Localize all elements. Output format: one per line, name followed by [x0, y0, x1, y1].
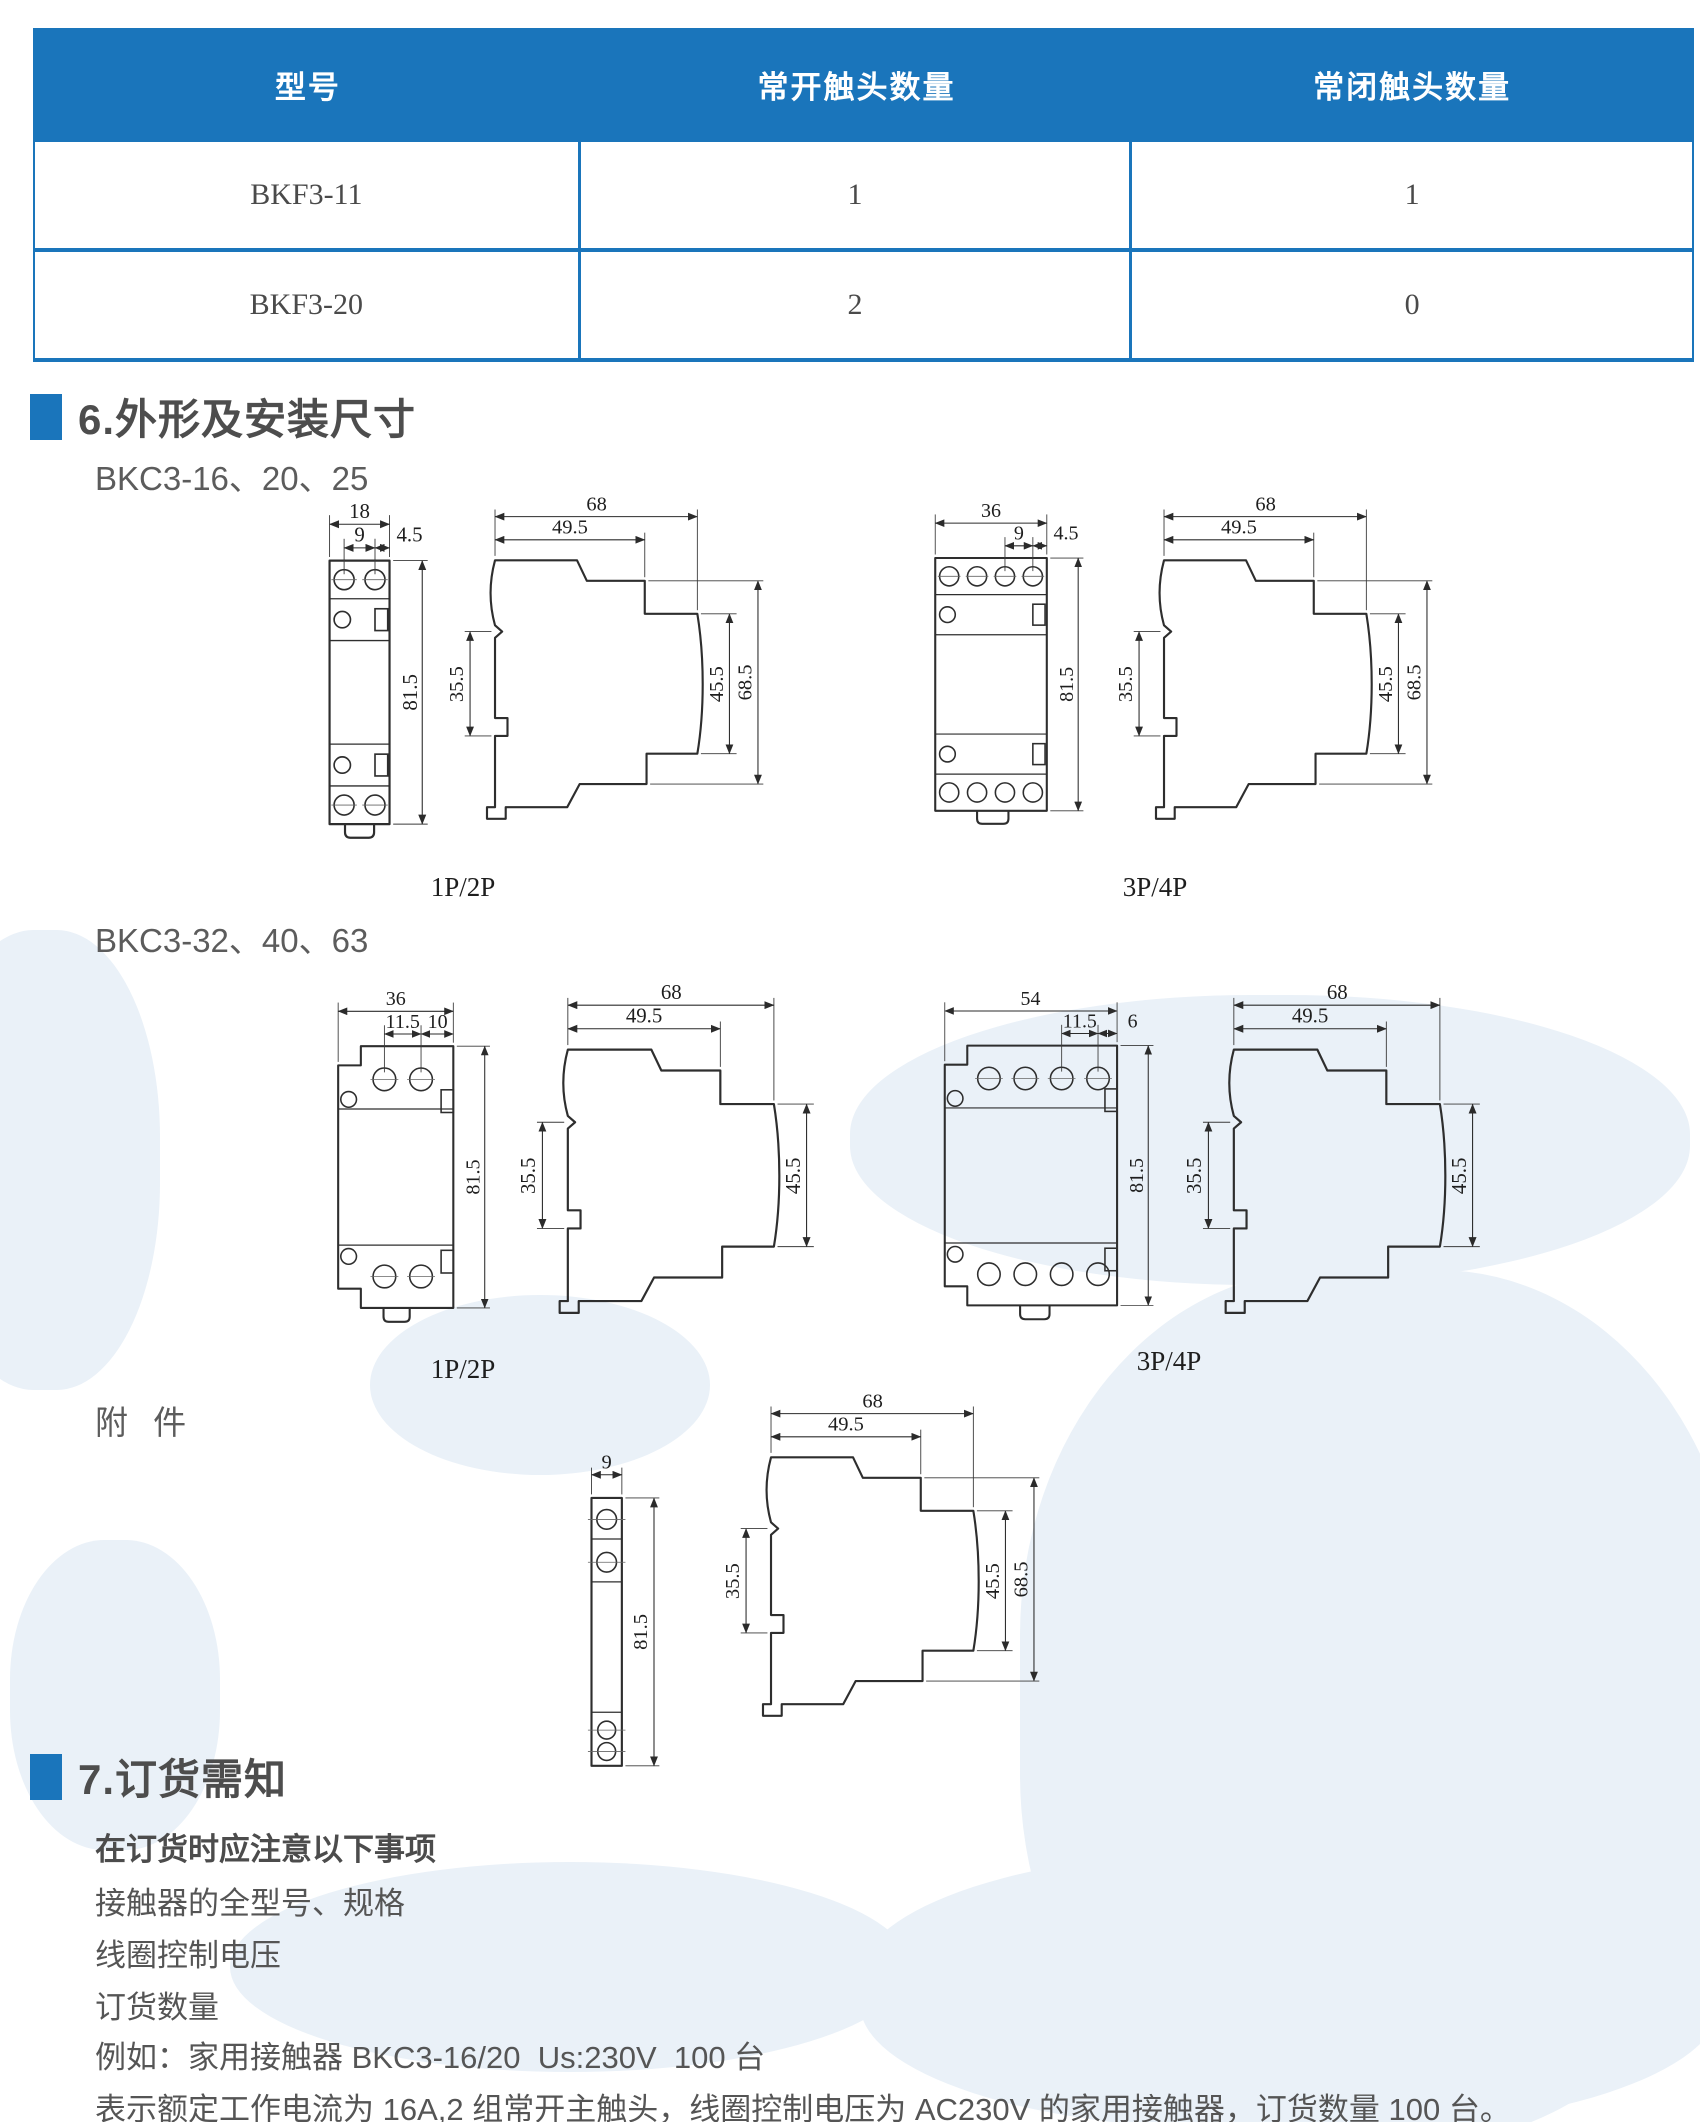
dim-text: 68 [1327, 985, 1348, 1004]
dim-text: 81.5 [1126, 1158, 1148, 1193]
no-count-cell: 1 [581, 142, 1133, 248]
ordering-item: 线圈控制电压 [95, 1930, 281, 1975]
dim-text: 49.5 [828, 1414, 864, 1436]
table-row: BKF3-20 2 0 [35, 248, 1692, 358]
ordering-item: 订货数量 [95, 1982, 219, 2027]
dim-text: 6 [1128, 1010, 1138, 1032]
ordering-item: 接触器的全型号、规格 [95, 1878, 405, 1923]
front-view-1p2p: 36 11.5 10 81.5 [312, 985, 517, 1356]
dim-text: 35.5 [517, 1158, 540, 1195]
dim-text: 36 [981, 500, 1001, 522]
drawing-unit-bkc3-large-1p2p: 36 11.5 10 81.5 68 49.5 35.5 45.5 [312, 985, 822, 1356]
col-header-no-contacts: 常开触头数量 [581, 28, 1133, 140]
section-7-header: 7.订货需知 [30, 1746, 287, 1807]
no-count-cell: 2 [581, 252, 1133, 358]
dim-text: 36 [386, 988, 406, 1010]
dim-text: 81.5 [630, 1614, 652, 1650]
front-view-1p2p: 18 9 4.5 81.5 [295, 497, 445, 865]
dim-text: 49.5 [626, 1003, 663, 1027]
dim-text: 4.5 [1053, 523, 1078, 545]
watermark-blob [860, 1850, 1700, 2122]
accessory-label: 附 件 [95, 1396, 194, 1444]
col-header-nc-contacts: 常闭触头数量 [1132, 28, 1692, 140]
dim-text: 9 [602, 1452, 612, 1474]
side-view-3p4p: 68 49.5 35.5 45.5 [1183, 985, 1488, 1353]
side-view-1p2p: 68 49.5 35.5 45.5 68.5 [445, 497, 775, 858]
drawing-unit-bkc3-large-3p4p: 54 11.5 6 81.5 68 49.5 35.5 45.5 [923, 985, 1488, 1353]
ordering-example: 例如：家用接触器 BKC3-16/20 Us:230V 100 台 [95, 2032, 765, 2077]
section-bullet [30, 394, 62, 440]
dim-text: 68 [862, 1394, 883, 1412]
pole-label: 1P/2P [398, 1354, 528, 1385]
drawing-unit-bkc3-small-1p2p: 18 9 4.5 81.5 68 49.5 35.5 45.5 [295, 497, 775, 865]
model-cell: BKF3-11 [35, 142, 581, 248]
table-row: BKF3-11 1 1 [35, 140, 1692, 248]
table-header-row: 型号 常开触头数量 常闭触头数量 [35, 28, 1692, 140]
dim-text: 54 [1021, 988, 1041, 1010]
contact-spec-table: 型号 常开触头数量 常闭触头数量 BKF3-11 1 1 BKF3-20 2 0 [33, 28, 1694, 362]
dim-text: 9 [1014, 523, 1024, 545]
dim-text: 81.5 [462, 1159, 484, 1194]
dim-text: 68.5 [735, 664, 757, 700]
dim-text: 68 [661, 985, 682, 1004]
ordering-note: 表示额定工作电流为 16A,2 组常开主触头，线圈控制电压为 AC230V 的家… [95, 2084, 1511, 2122]
side-view-1p2p: 68 49.5 35.5 45.5 [517, 985, 822, 1353]
pole-label: 1P/2P [398, 872, 528, 903]
dim-text: 9 [354, 523, 364, 547]
ordering-intro: 在订货时应注意以下事项 [95, 1824, 436, 1869]
section-6-title: 6.外形及安装尺寸 [78, 386, 416, 447]
dim-text: 45.5 [982, 1563, 1004, 1599]
dim-text: 68 [586, 497, 607, 515]
dim-text: 45.5 [1447, 1158, 1471, 1195]
dim-text: 81.5 [398, 674, 422, 711]
dim-text: 11.5 [1063, 1010, 1097, 1032]
pole-label: 3P/4P [1104, 1346, 1234, 1377]
dim-text: 68.5 [1011, 1561, 1033, 1597]
dim-text: 35.5 [1183, 1158, 1206, 1195]
section-bullet [30, 1754, 62, 1800]
dim-text: 18 [349, 499, 370, 523]
dim-text: 35.5 [722, 1563, 744, 1599]
nc-count-cell: 1 [1132, 142, 1692, 248]
dim-text: 11.5 [386, 1011, 420, 1033]
dim-text: 45.5 [706, 666, 728, 702]
watermark-blob [0, 930, 160, 1390]
dim-text: 81.5 [1056, 667, 1078, 702]
dim-text: 4.5 [396, 523, 422, 547]
pole-label: 3P/4P [1090, 872, 1220, 903]
model-group1-label: BKC3-16、20、25 [95, 452, 368, 500]
section-7-title: 7.订货需知 [78, 1746, 287, 1807]
side-view-3p4p: 68 49.5 35.5 45.5 68.5 [1114, 497, 1444, 858]
model-group2-label: BKC3-32、40、63 [95, 914, 368, 962]
datasheet-page: 型号 常开触头数量 常闭触头数量 BKF3-11 1 1 BKF3-20 2 0… [0, 0, 1700, 2122]
front-view-3p4p: 54 11.5 6 81.5 [923, 985, 1183, 1353]
section-6-header: 6.外形及安装尺寸 [30, 386, 416, 447]
nc-count-cell: 0 [1132, 252, 1692, 358]
accessory-front-view: 9 81.5 [554, 1446, 679, 1808]
model-cell: BKF3-20 [35, 252, 581, 358]
dim-text: 45.5 [1375, 666, 1397, 702]
dim-text: 49.5 [1292, 1003, 1329, 1027]
front-view-3p4p: 36 9 4.5 81.5 [909, 497, 1114, 850]
dim-text: 35.5 [446, 666, 468, 702]
dim-text: 45.5 [781, 1158, 805, 1195]
accessory-side-view: 68 49.5 35.5 45.5 68.5 [721, 1394, 1051, 1755]
dim-text: 68.5 [1404, 664, 1426, 700]
col-header-model: 型号 [35, 28, 581, 140]
dim-text: 49.5 [1221, 517, 1257, 539]
drawing-unit-bkc3-small-3p4p: 36 9 4.5 81.5 68 49.5 35.5 45.5 [909, 497, 1444, 858]
dim-text: 35.5 [1115, 666, 1137, 702]
dim-text: 49.5 [552, 517, 588, 539]
dim-text: 68 [1255, 497, 1276, 515]
dim-text: 10 [428, 1011, 448, 1033]
